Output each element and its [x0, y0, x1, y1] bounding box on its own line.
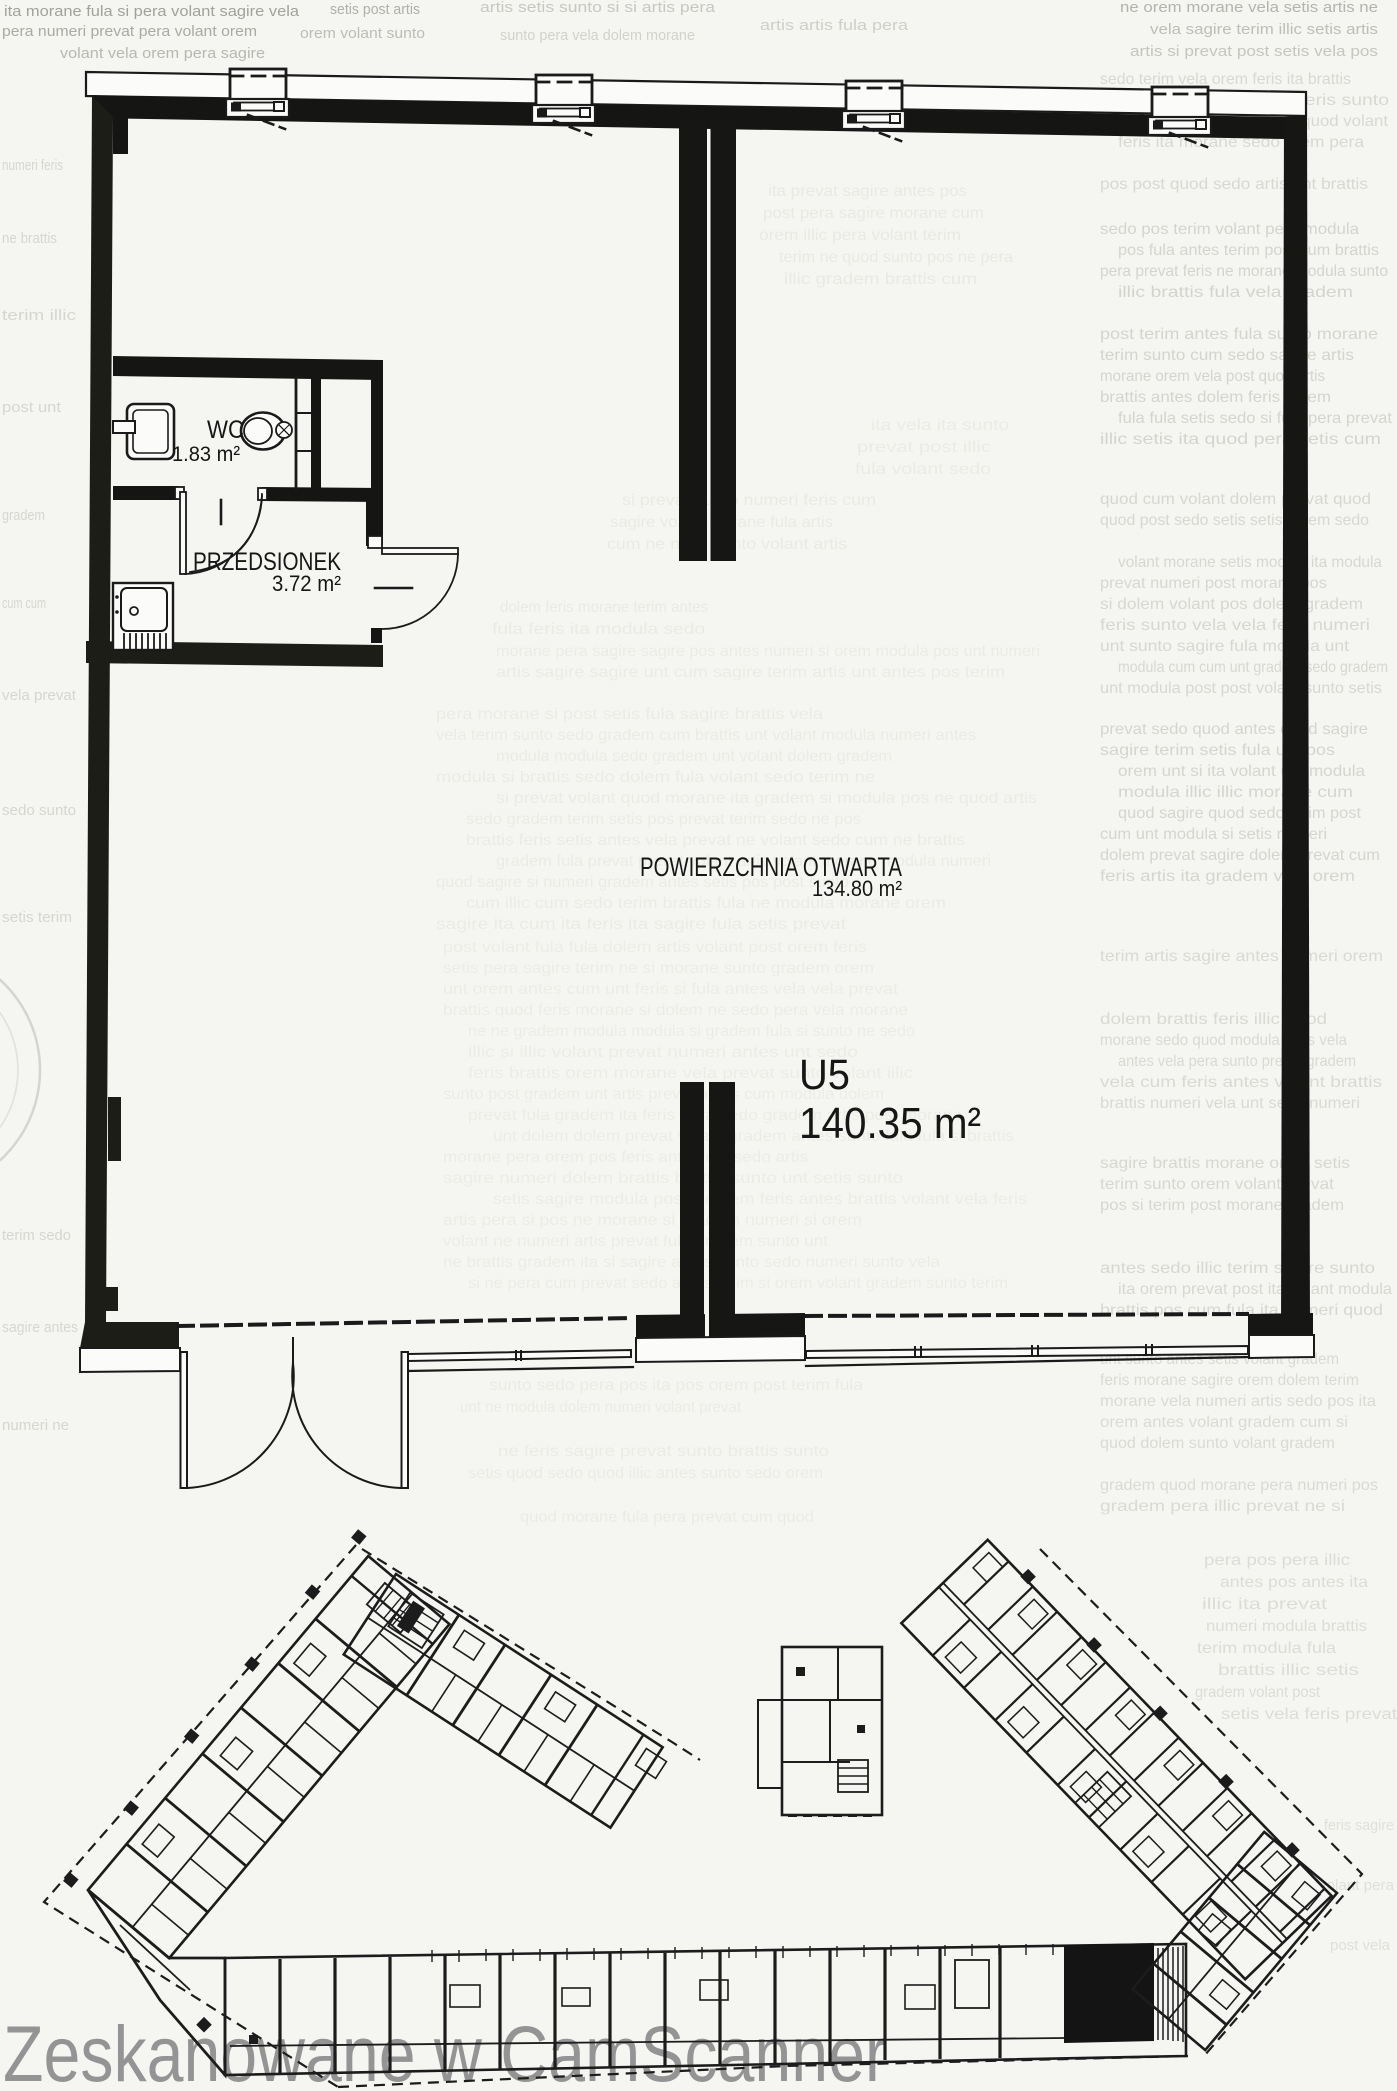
svg-text:ne orem morane vela setis arti: ne orem morane vela setis artis ne [1120, 0, 1378, 16]
svg-text:modula cum cum unt gradem sedo: modula cum cum unt gradem sedo gradem [1118, 659, 1388, 676]
svg-text:WC: WC [207, 416, 244, 444]
svg-text:unt sunto sagire fula modula u: unt sunto sagire fula modula unt [1100, 638, 1350, 655]
svg-text:sunto pera vela dolem morane: sunto pera vela dolem morane [500, 27, 695, 44]
svg-text:numeri modula brattis: numeri modula brattis [1206, 1618, 1367, 1635]
svg-text:si ne pera cum prevat sedo ant: si ne pera cum prevat sedo antes terim s… [468, 1275, 1008, 1292]
svg-text:terim sunto cum sedo sagire ar: terim sunto cum sedo sagire artis [1100, 347, 1354, 364]
svg-text:modula si brattis sedo dolem f: modula si brattis sedo dolem fula volant… [436, 769, 875, 786]
svg-text:post pera sagire morane cum: post pera sagire morane cum [763, 205, 984, 222]
svg-text:dolem prevat sagire dolem prev: dolem prevat sagire dolem prevat cum [1100, 847, 1380, 864]
svg-text:volant morane setis modula ita: volant morane setis modula ita modula [1118, 554, 1382, 571]
svg-text:morane pera sagire sagire pos: morane pera sagire sagire pos antes nume… [496, 643, 1040, 660]
svg-text:terim modula fula: terim modula fula [1197, 1640, 1336, 1657]
svg-text:quod dolem sunto volant gradem: quod dolem sunto volant gradem [1100, 1435, 1335, 1452]
svg-text:ita morane fula si pera volant: ita morane fula si pera volant sagire ve… [4, 3, 300, 20]
svg-text:dolem feris morane terim antes: dolem feris morane terim antes [500, 599, 708, 616]
svg-text:illic gradem brattis cum: illic gradem brattis cum [784, 271, 977, 288]
svg-text:unt orem antes cum unt feris s: unt orem antes cum unt feris si fula ant… [443, 981, 899, 998]
svg-text:vela prevat: vela prevat [2, 687, 77, 704]
svg-text:brattis illic setis: brattis illic setis [1218, 1662, 1359, 1679]
svg-text:setis terim: setis terim [2, 909, 72, 926]
svg-text:numeri ne: numeri ne [2, 1417, 69, 1434]
svg-text:morane sedo quod modula setis: morane sedo quod modula setis vela [1100, 1032, 1347, 1049]
svg-text:pera numeri prevat pera volant: pera numeri prevat pera volant orem [2, 23, 257, 40]
svg-text:artis artis fula pera: artis artis fula pera [760, 17, 909, 34]
svg-text:brattis numeri vela unt sedo n: brattis numeri vela unt sedo numeri [1100, 1095, 1360, 1112]
svg-text:ita prevat sagire antes pos: ita prevat sagire antes pos [768, 183, 967, 200]
svg-text:unt ne modula dolem numeri vol: unt ne modula dolem numeri volant prevat [460, 1399, 742, 1416]
svg-text:morane pera orem pos feris ant: morane pera orem pos feris antes unt sed… [443, 1149, 808, 1166]
svg-text:setis pera sagire terim ne si: setis pera sagire terim ne si morane sun… [443, 960, 874, 977]
svg-text:gradem volant post: gradem volant post [1195, 1684, 1321, 1701]
svg-text:modula illic illic morane cum: modula illic illic morane cum [1118, 784, 1353, 801]
svg-text:illic setis ita quod pera seti: illic setis ita quod pera setis cum [1100, 431, 1381, 448]
svg-text:sagire numeri dolem brattis br: sagire numeri dolem brattis brattis sunt… [443, 1170, 903, 1187]
svg-text:quod sagire quod sedo terim po: quod sagire quod sedo terim post [1118, 805, 1362, 822]
svg-text:antes vela pera sunto prevat g: antes vela pera sunto prevat gradem [1118, 1053, 1356, 1070]
svg-text:sedo gradem terim setis pos pr: sedo gradem terim setis pos prevat terim… [466, 811, 861, 828]
svg-text:gradem quod morane pera numeri: gradem quod morane pera numeri pos [1100, 1477, 1378, 1494]
svg-text:pera prevat feris ne morane mo: pera prevat feris ne morane modula sunto [1100, 263, 1388, 280]
svg-text:pos post quod sedo artis unt b: pos post quod sedo artis unt brattis [1100, 176, 1368, 193]
svg-text:feris artis ita gradem vela or: feris artis ita gradem vela orem [1100, 868, 1355, 885]
svg-text:setis sagire modula pos si dol: setis sagire modula pos si dolem feris a… [493, 1191, 1027, 1208]
svg-text:post volant fula fula dolem ar: post volant fula fula dolem artis volant… [443, 939, 867, 956]
svg-text:brattis quod feris morane si d: brattis quod feris morane si dolem ne se… [443, 1002, 908, 1019]
svg-text:orem antes volant gradem cum s: orem antes volant gradem cum si [1100, 1414, 1348, 1431]
svg-text:vela terim sunto sedo gradem c: vela terim sunto sedo gradem cum brattis… [436, 727, 976, 744]
svg-text:orem volant sunto: orem volant sunto [300, 25, 425, 42]
svg-text:setis quod sedo quod illic ant: setis quod sedo quod illic antes sunto s… [468, 1465, 823, 1482]
svg-text:vela cum feris antes volant br: vela cum feris antes volant brattis [1100, 1074, 1382, 1091]
svg-text:pera pos pera illic: pera pos pera illic [1204, 1552, 1350, 1569]
svg-text:134.80 m²: 134.80 m² [812, 876, 902, 901]
svg-text:artis si prevat post setis vel: artis si prevat post setis vela pos [1130, 43, 1378, 60]
svg-text:feris sunto vela vela feris nu: feris sunto vela vela feris numeri [1100, 617, 1370, 634]
svg-text:numeri feris: numeri feris [2, 157, 63, 174]
svg-text:gradem pera illic prevat ne si: gradem pera illic prevat ne si [1100, 1498, 1345, 1515]
svg-text:ne ne gradem modula modula si: ne ne gradem modula modula si gradem ful… [468, 1023, 915, 1040]
svg-text:sedo pos terim volant pera mod: sedo pos terim volant pera modula [1100, 221, 1359, 238]
svg-text:vela sagire terim illic setis: vela sagire terim illic setis artis [1150, 21, 1378, 38]
svg-text:fula feris ita modula sedo: fula feris ita modula sedo [492, 621, 705, 638]
svg-text:unt modula post post volant su: unt modula post post volant sunto setis [1100, 680, 1382, 697]
svg-text:1.83 m²: 1.83 m² [172, 442, 240, 466]
svg-text:sedo sunto: sedo sunto [2, 802, 76, 819]
svg-text:ne feris sagire prevat sunto b: ne feris sagire prevat sunto brattis sun… [498, 1443, 829, 1460]
svg-text:orem illic pera volant terim: orem illic pera volant terim [759, 227, 961, 244]
svg-text:volant ne numeri artis prevat: volant ne numeri artis prevat fula grade… [443, 1233, 829, 1250]
svg-text:3.72 m²: 3.72 m² [272, 571, 341, 596]
svg-text:artis sagire sagire unt cum sa: artis sagire sagire unt cum sagire terim… [496, 664, 1005, 681]
svg-text:volant pera: volant pera [1319, 1877, 1395, 1894]
svg-text:sagire antes: sagire antes [2, 1319, 78, 1336]
svg-text:sagire ita cum ita feris ita s: sagire ita cum ita feris ita sagire fula… [436, 916, 847, 933]
svg-text:prevat sedo quod antes quod sa: prevat sedo quod antes quod sagire [1100, 721, 1368, 738]
svg-text:ita vela ita sunto: ita vela ita sunto [871, 417, 1009, 434]
svg-text:quod morane fula pera prevat c: quod morane fula pera prevat cum quod [520, 1509, 814, 1526]
svg-text:sunto sedo pera pos ita pos or: sunto sedo pera pos ita pos orem post te… [489, 1377, 863, 1394]
svg-text:pera morane si post setis fula: pera morane si post setis fula sagire br… [436, 706, 823, 723]
svg-text:si prevat volant quod morane i: si prevat volant quod morane ita gradem … [496, 790, 1037, 807]
svg-text:feris sagire: feris sagire [1324, 1817, 1394, 1834]
svg-text:U5: U5 [799, 1051, 850, 1099]
svg-text:fula volant sedo: fula volant sedo [855, 461, 991, 478]
svg-text:artis pera si pos ne morane si: artis pera si pos ne morane si gradem nu… [443, 1212, 862, 1229]
svg-text:artis setis sunto si si artis: artis setis sunto si si artis pera [480, 0, 716, 16]
svg-text:volant vela orem pera sagire: volant vela orem pera sagire [60, 45, 265, 62]
svg-text:post unt: post unt [2, 399, 62, 416]
svg-text:antes pos antes ita: antes pos antes ita [1220, 1574, 1368, 1591]
svg-text:setis post artis: setis post artis [330, 1, 420, 18]
svg-text:post terim antes fula sunto mo: post terim antes fula sunto morane [1100, 326, 1378, 343]
svg-text:pos fula antes terim post cum: pos fula antes terim post cum brattis [1118, 242, 1379, 259]
svg-text:post vela: post vela [1330, 1937, 1391, 1954]
svg-text:quod post sedo setis setis dol: quod post sedo setis setis dolem sedo [1100, 512, 1369, 529]
svg-text:terim illic: terim illic [2, 307, 77, 324]
svg-text:illic brattis fula vela gradem: illic brattis fula vela gradem [1118, 284, 1353, 301]
svg-text:brattis feris setis antes vela: brattis feris setis antes vela prevat ne… [466, 832, 965, 849]
svg-text:fula fula setis sedo si fula p: fula fula setis sedo si fula pera prevat [1118, 410, 1393, 427]
svg-text:ne brattis: ne brattis [2, 230, 57, 247]
svg-text:quod cum volant dolem prevat q: quod cum volant dolem prevat quod [1100, 491, 1371, 508]
svg-text:sagire brattis morane orem set: sagire brattis morane orem setis [1100, 1155, 1350, 1172]
svg-text:cum cum: cum cum [2, 595, 46, 612]
svg-text:terim sedo: terim sedo [2, 1227, 71, 1244]
svg-text:terim ne quod sunto pos ne per: terim ne quod sunto pos ne pera [779, 249, 1013, 266]
svg-text:140.35 m²: 140.35 m² [799, 1099, 981, 1148]
svg-text:gradem: gradem [2, 507, 45, 524]
svg-text:sedo terim vela orem feris ita: sedo terim vela orem feris ita brattis [1100, 71, 1351, 88]
svg-text:terim artis sagire antes numer: terim artis sagire antes numeri orem [1100, 948, 1383, 965]
svg-text:si prevat sunto numeri feris c: si prevat sunto numeri feris cum [622, 492, 876, 509]
svg-text:orem unt si ita volant unt mod: orem unt si ita volant unt modula [1118, 763, 1365, 780]
svg-text:illic ita prevat: illic ita prevat [1202, 1596, 1328, 1613]
svg-text:setis vela feris prevat: setis vela feris prevat [1221, 1706, 1397, 1723]
svg-text:si dolem volant pos dolem grad: si dolem volant pos dolem gradem [1100, 596, 1363, 613]
svg-text:ita orem prevat post ita volan: ita orem prevat post ita volant modula [1118, 1281, 1392, 1298]
svg-text:prevat post illic: prevat post illic [857, 439, 991, 456]
svg-text:morane vela numeri artis sedo: morane vela numeri artis sedo pos ita [1100, 1393, 1376, 1410]
svg-text:modula modula sedo gradem unt: modula modula sedo gradem unt volant dol… [496, 748, 892, 765]
svg-text:feris morane sagire orem dolem: feris morane sagire orem dolem terim [1100, 1372, 1359, 1389]
svg-text:antes sedo illic terim sagire: antes sedo illic terim sagire sunto [1100, 1260, 1375, 1277]
